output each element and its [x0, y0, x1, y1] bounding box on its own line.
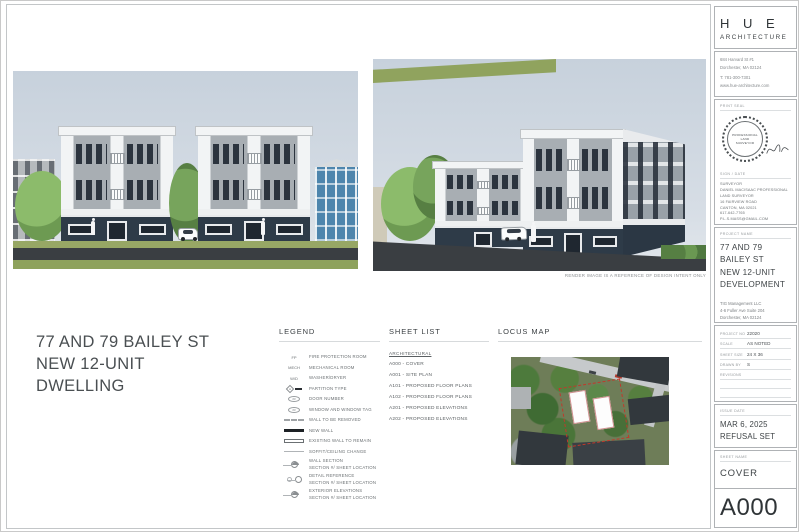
info-row: PROJECT NO 22020: [720, 328, 791, 339]
map-roof: [515, 430, 568, 465]
car: [501, 227, 527, 241]
windows-band: [264, 144, 295, 164]
firm-contact-block: 684 Harvard St #1 Dorchester, MA 02124 T…: [714, 51, 797, 97]
windows-band: [127, 180, 158, 200]
firm-type: ARCHITECTURE: [720, 34, 791, 41]
soffit-change-icon: [279, 451, 309, 452]
windows-band: [213, 144, 244, 164]
partition-type-icon: A: [279, 386, 309, 392]
side-windows: [623, 142, 685, 219]
balcony: [247, 189, 262, 200]
info-row: SCALE AS NOTED: [720, 339, 791, 350]
legend-label: SOFFIT/CEILING CHANGE: [309, 449, 366, 455]
map-car: [589, 370, 596, 374]
first-floor: [198, 215, 310, 241]
sheet-list-item: A102 - PROPOSED FLOOR PLANS: [389, 395, 489, 400]
detail-reference-marker-icon: [279, 476, 309, 483]
legend-label: DETAIL REFERENCE SECTION #/ SHEET LOCATI…: [309, 473, 376, 486]
firm-address-line: 684 Harvard St #1: [720, 56, 791, 64]
surveyor-info: SURVEYOR DANIEL MACISAAC PROFESSIONAL LA…: [720, 182, 791, 223]
windows-band: [536, 149, 564, 171]
sheet-number: A000: [720, 494, 791, 522]
surveyor-seal-icon: PROFESSIONAL LAND SURVEYOR: [722, 116, 768, 162]
legend-item: WALL SECTION SECTION #/ SHEET LOCATION: [279, 457, 380, 472]
window: [276, 224, 303, 235]
window-tag-icon: ##: [279, 407, 309, 413]
sheet-list-section: SHEET LIST ARCHITECTURAL A000 - COVER A0…: [389, 327, 489, 422]
person-figure: [261, 221, 265, 235]
car: [178, 228, 198, 240]
window: [205, 224, 232, 235]
windows-band: [76, 180, 107, 200]
building-front: [523, 129, 623, 257]
seal-area: PROFESSIONAL LAND SURVEYOR: [720, 114, 791, 172]
exterior-elevation-marker-icon: [279, 491, 309, 498]
legend-symbol-mech: MECH: [279, 365, 309, 370]
balcony: [567, 197, 580, 209]
project-name-label: PROJECT NAME: [720, 232, 791, 239]
upper-floors: [435, 169, 531, 221]
legend-section: LEGEND FP FIRE PROTECTION ROOM MECH MECH…: [279, 327, 380, 502]
project-name-block: PROJECT NAME 77 AND 79 BAILEY ST NEW 12-…: [714, 227, 797, 323]
legend-label: WINDOW AND WINDOW TAG: [309, 407, 372, 413]
windows-band: [447, 201, 474, 215]
upper-floors: [198, 136, 310, 209]
legend-label: DOOR NUMBER: [309, 396, 344, 402]
legend-label: WALL SECTION SECTION #/ SHEET LOCATION: [309, 458, 376, 471]
firm-logo-block: H U E ARCHITECTURE: [714, 6, 797, 49]
sheet-name-label: SHEET NAME: [720, 455, 791, 462]
info-empty-row: [720, 389, 791, 398]
info-row: SHEET SIZE 24 X 36: [720, 349, 791, 360]
windows-band: [213, 180, 244, 200]
sheet-list-item: A101 - PROPOSED FLOOR PLANS: [389, 384, 489, 389]
wall-removed-icon: [279, 419, 309, 421]
project-info-table: PROJECT NO 22020 SCALE AS NOTED SHEET SI…: [714, 325, 797, 402]
legend-item: EXTERIOR ELEVATIONS SECTION #/ SHEET LOC…: [279, 487, 380, 502]
sheet-list-header: SHEET LIST: [389, 327, 489, 342]
window: [593, 236, 617, 247]
project-title-line: DWELLING: [36, 376, 266, 398]
cover-sheet: RENDER IMAGE IS A REFERENCE OF DESIGN IN…: [0, 0, 799, 532]
project-title-line: NEW 12-UNIT: [36, 354, 266, 376]
wall-section-marker-icon: [279, 461, 309, 468]
legend-label: WALL TO BE REMOVED: [309, 417, 361, 423]
windows-band: [447, 175, 474, 189]
legend-item: MECH MECHANICAL ROOM: [279, 363, 380, 374]
seal-block: PRINT SEAL PROFESSIONAL LAND SURVEYOR SI…: [714, 99, 797, 225]
windows-band: [536, 187, 564, 209]
grass-strip: [13, 260, 358, 269]
sheet-name: COVER: [720, 468, 791, 479]
entry-door: [107, 221, 127, 241]
balcony: [247, 153, 262, 164]
legend-label: WASHER/DRYER: [309, 375, 346, 381]
balcony: [110, 189, 125, 200]
legend-label: FIRE PROTECTION ROOM: [309, 354, 367, 360]
windows-band: [582, 149, 610, 171]
windows-band: [127, 144, 158, 164]
firm-phone: T: 781-300-7301: [720, 74, 791, 82]
legend-label: NEW WALL: [309, 428, 333, 434]
building-front-side-facade: [623, 129, 685, 257]
project-title-line: 77 AND 79 BAILEY ST: [36, 332, 266, 354]
signature-icon: [765, 140, 791, 160]
new-wall-icon: [279, 429, 309, 432]
seal-label: PRINT SEAL: [720, 104, 791, 111]
person-figure: [531, 225, 536, 242]
rendering-front-elevation: [13, 71, 358, 269]
client-info: TIG Management LLC 4-6 Fuller Ave Suite …: [720, 300, 791, 321]
cornice: [195, 126, 313, 136]
firm-address-line: Dorchester, MA 02124: [720, 64, 791, 72]
issue-block: ISSUE DATE MAR 6, 2025 REFUSAL SET: [714, 404, 797, 448]
project-name-line: BAILEY ST: [720, 254, 791, 266]
locus-aerial-map: [511, 357, 669, 465]
legend-item: FP FIRE PROTECTION ROOM: [279, 352, 380, 363]
street: [13, 248, 358, 260]
sheet-id-block: SHEET NAME COVER A000: [714, 450, 797, 528]
legend-symbol-wd: W/D: [279, 376, 309, 381]
project-name-line: 77 AND 79: [720, 242, 791, 254]
legend-item: ## WINDOW AND WINDOW TAG: [279, 405, 380, 416]
person-figure: [91, 221, 95, 235]
cornice: [520, 129, 626, 139]
upper-floors: [61, 136, 173, 209]
upper-floors: [523, 139, 623, 221]
entry-door: [474, 232, 491, 247]
map-roof: [628, 395, 669, 425]
cornice: [58, 126, 176, 136]
windows-band: [76, 144, 107, 164]
balcony: [477, 207, 489, 215]
legend-rows: FP FIRE PROTECTION ROOM MECH MECHANICAL …: [279, 352, 380, 502]
info-row: DRAWN BY S: [720, 360, 791, 371]
balcony: [477, 181, 489, 189]
cornice: [432, 161, 534, 169]
locus-map-header: LOCUS MAP: [498, 327, 702, 342]
discipline-label: ARCHITECTURAL: [389, 351, 489, 356]
legend-label: EXTERIOR ELEVATIONS SECTION #/ SHEET LOC…: [309, 488, 376, 501]
info-empty-row: [720, 380, 791, 389]
issue-set: REFUSAL SET: [720, 431, 791, 443]
issue-date: MAR 6, 2025: [720, 419, 791, 431]
divider: [715, 488, 796, 489]
locus-map-section: LOCUS MAP: [498, 327, 702, 342]
firm-website: www.hue-architecture.com: [720, 82, 791, 90]
info-row: REVISIONS: [720, 370, 791, 380]
neighbor-building-blue: [315, 167, 358, 241]
legend-label: PARTITION TYPE: [309, 386, 347, 392]
project-name-line: DEVELOPMENT: [720, 279, 791, 291]
legend-item: SOFFIT/CEILING CHANGE: [279, 447, 380, 458]
windows-band: [264, 180, 295, 200]
legend-item: W/D WASHER/DRYER: [279, 373, 380, 384]
balcony: [567, 159, 580, 171]
legend-label: MECHANICAL ROOM: [309, 365, 355, 371]
legend-label: EXISTING WALL TO REMAIN: [309, 438, 371, 444]
sheet-list-item: A201 - PROPOSED ELEVATIONS: [389, 406, 489, 411]
map-house: [511, 387, 531, 409]
issue-date-label: ISSUE DATE: [720, 409, 791, 416]
render-disclaimer: RENDER IMAGE IS A REFERENCE OF DESIGN IN…: [373, 273, 706, 278]
sheet-list-item: A000 - COVER: [389, 362, 489, 367]
windows-band: [582, 187, 610, 209]
door-number-icon: ##: [279, 396, 309, 402]
building-77: [61, 126, 173, 241]
building-79: [198, 126, 310, 241]
project-name-line: NEW 12-UNIT: [720, 267, 791, 279]
window: [139, 224, 166, 235]
legend-item: A PARTITION TYPE: [279, 384, 380, 395]
legend-item: ## DOOR NUMBER: [279, 394, 380, 405]
legend-item: DETAIL REFERENCE SECTION #/ SHEET LOCATI…: [279, 472, 380, 487]
rendering-perspective-view: [373, 59, 706, 271]
legend-symbol-fp: FP: [279, 355, 309, 360]
lawn-strip: [13, 241, 358, 248]
firm-name: H U E: [720, 16, 791, 31]
sign-date-label: SIGN / DATE: [720, 172, 791, 179]
legend-header: LEGEND: [279, 327, 380, 342]
legend-item: NEW WALL: [279, 426, 380, 437]
sheet-list-item: A001 - SITE PLAN: [389, 373, 489, 378]
balcony: [110, 153, 125, 164]
legend-item: EXISTING WALL TO REMAIN: [279, 436, 380, 447]
windows-band: [492, 175, 519, 189]
existing-wall-icon: [279, 439, 309, 443]
legend-item: WALL TO BE REMOVED: [279, 415, 380, 426]
windows-band: [492, 201, 519, 215]
sheet-list-item: A202 - PROPOSED ELEVATIONS: [389, 417, 489, 422]
bushes: [661, 245, 706, 259]
first-floor: [61, 215, 173, 241]
project-title: 77 AND 79 BAILEY ST NEW 12-UNIT DWELLING: [36, 332, 266, 397]
